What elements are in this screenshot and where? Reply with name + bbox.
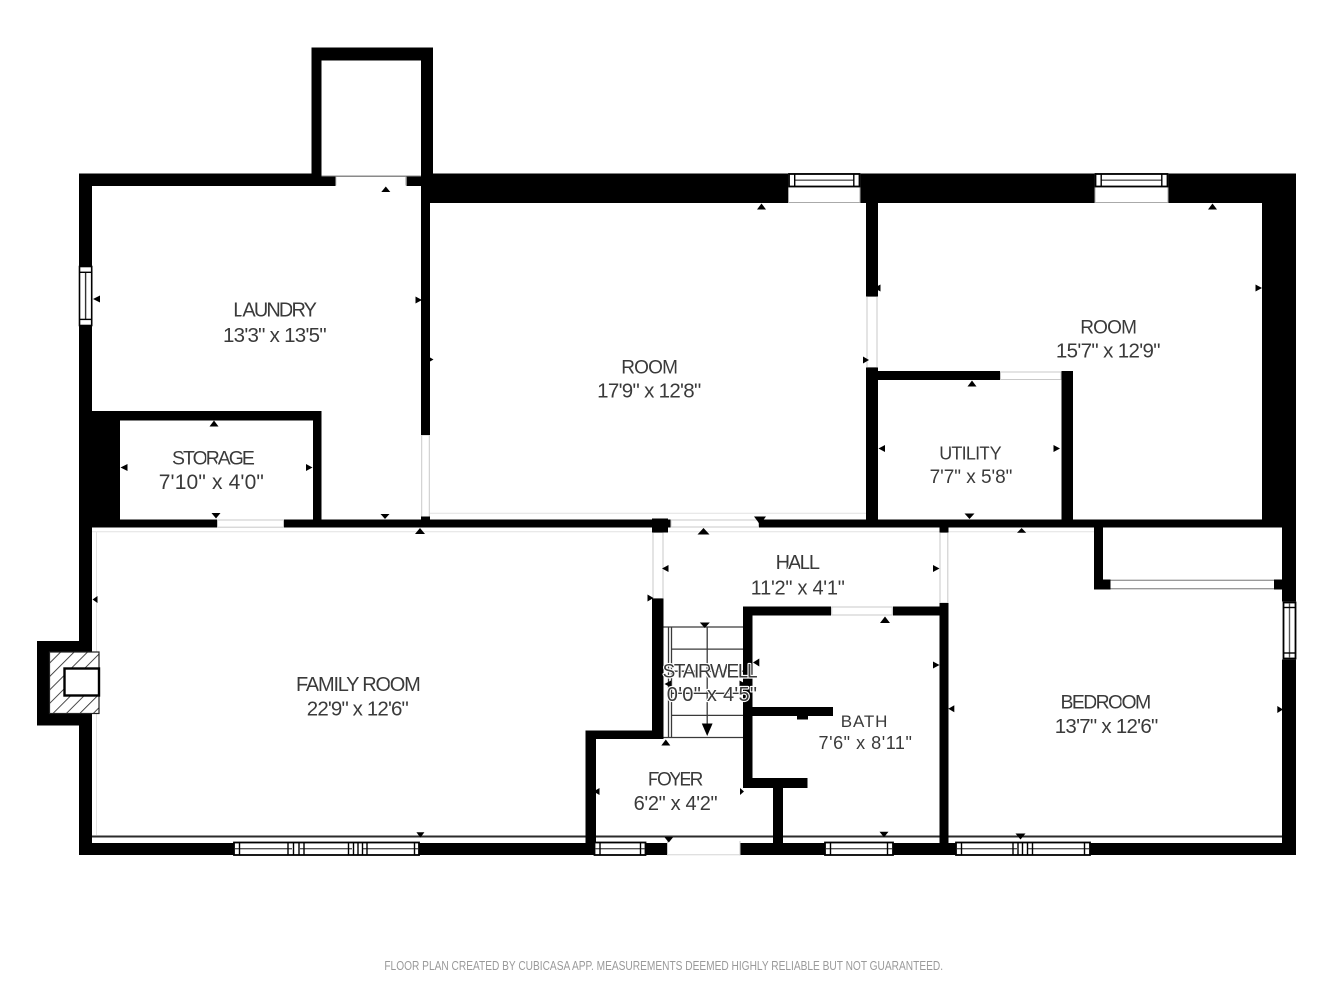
svg-text:LAUNDRY: LAUNDRY bbox=[233, 300, 317, 322]
svg-text:FAMILY ROOM: FAMILY ROOM bbox=[296, 674, 421, 696]
svg-text:22'9" x 12'6": 22'9" x 12'6" bbox=[307, 698, 409, 721]
svg-text:15'7" x 12'9": 15'7" x 12'9" bbox=[1056, 340, 1161, 363]
svg-text:STAIRWELL: STAIRWELL bbox=[663, 662, 758, 683]
svg-text:6'2" x 4'2": 6'2" x 4'2" bbox=[634, 793, 718, 815]
svg-text:13'3" x 13'5": 13'3" x 13'5" bbox=[223, 324, 327, 347]
svg-text:HALL: HALL bbox=[776, 552, 820, 574]
svg-text:ROOM: ROOM bbox=[1080, 318, 1136, 339]
svg-text:7'6" x 8'11": 7'6" x 8'11" bbox=[819, 733, 912, 753]
svg-text:7'10" x 4'0": 7'10" x 4'0" bbox=[159, 471, 264, 494]
svg-text:ROOM: ROOM bbox=[621, 358, 677, 379]
svg-text:7'7" x 5'8": 7'7" x 5'8" bbox=[930, 467, 1013, 488]
svg-text:13'7" x 12'6": 13'7" x 12'6" bbox=[1055, 715, 1159, 738]
svg-text:BEDROOM: BEDROOM bbox=[1061, 692, 1152, 714]
svg-text:STORAGE: STORAGE bbox=[172, 448, 255, 470]
svg-text:17'9" x 12'8": 17'9" x 12'8" bbox=[597, 380, 701, 403]
svg-text:BATH: BATH bbox=[841, 712, 888, 731]
svg-text:FLOOR PLAN CREATED BY CUBICASA: FLOOR PLAN CREATED BY CUBICASA APP. MEAS… bbox=[384, 959, 943, 973]
svg-text:11'2" x 4'1": 11'2" x 4'1" bbox=[751, 578, 845, 600]
svg-text:FOYER: FOYER bbox=[648, 770, 704, 791]
svg-text:0'0" x 4'5": 0'0" x 4'5" bbox=[667, 684, 757, 706]
svg-text:UTILITY: UTILITY bbox=[939, 444, 1001, 464]
